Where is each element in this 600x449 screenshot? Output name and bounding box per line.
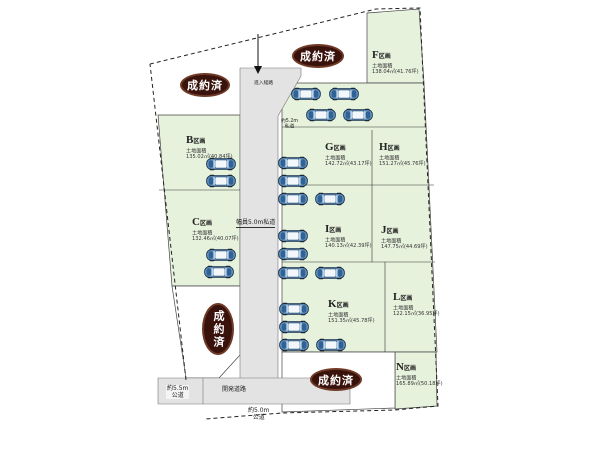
south-road-type: 公道 xyxy=(253,414,265,421)
west-road-width: 約5.5m xyxy=(167,385,188,392)
road-width-type: 私道 xyxy=(285,124,295,130)
sold-badge-northwest: 成約済 xyxy=(180,73,230,97)
plot-title: H区画 xyxy=(379,138,434,155)
car-icon xyxy=(206,174,236,188)
south-road-width: 約5.0m xyxy=(248,407,269,414)
site-plan-svg xyxy=(0,0,600,449)
sold-badge-south: 成約済 xyxy=(310,368,362,391)
development-road-label: 開発道路 xyxy=(222,386,246,393)
plot-area-text: 土地面積138.04㎡(41.76坪) xyxy=(372,63,419,75)
car-icon xyxy=(343,108,373,122)
plot-area-text: 土地面積132.46㎡(40.07坪) xyxy=(192,230,239,242)
car-icon xyxy=(306,108,336,122)
plot-area-text: 土地面積147.75㎡(44.69坪) xyxy=(381,238,428,250)
plot-title: I区画 xyxy=(325,220,380,237)
plot-title: F区画 xyxy=(372,46,427,63)
plot-title: G区画 xyxy=(325,138,380,155)
plot-label-k: K区画 土地面積151.35㎡(45.78坪) xyxy=(328,295,383,326)
site-plan-canvas: 成約済 成約済 成約済 成約済 B区画 土地面積135.02㎡(40.84坪) … xyxy=(0,0,600,449)
plot-area-text: 土地面積165.89㎡(50.18坪) xyxy=(396,375,443,387)
sold-badge-west: 成約済 xyxy=(202,303,234,355)
plot-area-text: 土地面積142.72㎡(43.17坪) xyxy=(325,155,372,167)
car-icon xyxy=(315,266,345,280)
plot-label-i: I区画 土地面積140.13㎡(42.39坪) xyxy=(325,220,380,251)
car-icon xyxy=(315,192,345,206)
west-road-label: 約5.5m 公道 xyxy=(166,385,189,399)
car-icon xyxy=(291,87,321,101)
plot-area-text: 土地面積151.35㎡(45.78坪) xyxy=(328,312,375,324)
plot-label-f: F区画 土地面積138.04㎡(41.76坪) xyxy=(372,46,427,77)
plot-label-c: C区画 土地面積132.46㎡(40.07坪) xyxy=(192,213,247,244)
car-icon xyxy=(278,247,308,261)
plot-area-text: 土地面積151.27㎡(45.76坪) xyxy=(379,155,426,167)
car-icon xyxy=(316,338,346,352)
sold-badge-north: 成約済 xyxy=(292,44,344,68)
car-icon xyxy=(206,157,236,171)
plot-title: J区画 xyxy=(381,221,436,238)
car-icon xyxy=(279,302,309,316)
car-icon xyxy=(278,156,308,170)
car-icon xyxy=(278,192,308,206)
car-icon xyxy=(279,320,309,334)
west-road-type: 公道 xyxy=(172,392,184,399)
plot-label-g: G区画 土地面積142.72㎡(43.17坪) xyxy=(325,138,380,169)
plot-area-text: 土地面積122.15㎡(36.95坪) xyxy=(393,305,440,317)
plot-label-l: L区画 土地面積122.15㎡(36.95坪) xyxy=(393,288,448,319)
car-icon xyxy=(279,338,309,352)
car-icon xyxy=(278,229,308,243)
plot-area-text: 土地面積140.13㎡(42.39坪) xyxy=(325,237,372,249)
center-road-label: 幅員5.0m私道 xyxy=(236,219,275,228)
plot-label-h: H区画 土地面積151.27㎡(45.76坪) xyxy=(379,138,434,169)
car-icon xyxy=(329,87,359,101)
car-icon xyxy=(206,248,236,262)
road-width-note: 約5.2m 私道 xyxy=(281,118,298,130)
plot-label-n: N区画 土地面積165.89㎡(50.18坪) xyxy=(396,358,451,389)
plot-title: B区画 xyxy=(186,131,241,148)
car-icon xyxy=(278,266,308,280)
entrance-road-label: 進入経路 xyxy=(254,80,273,86)
plot-title: L区画 xyxy=(393,288,448,305)
car-icon xyxy=(278,174,308,188)
plot-title: K区画 xyxy=(328,295,383,312)
car-icon xyxy=(204,265,234,279)
plot-title: N区画 xyxy=(396,358,451,375)
plot-label-j: J区画 土地面積147.75㎡(44.69坪) xyxy=(381,221,436,252)
south-road-label: 約5.0m 公道 xyxy=(248,407,269,421)
